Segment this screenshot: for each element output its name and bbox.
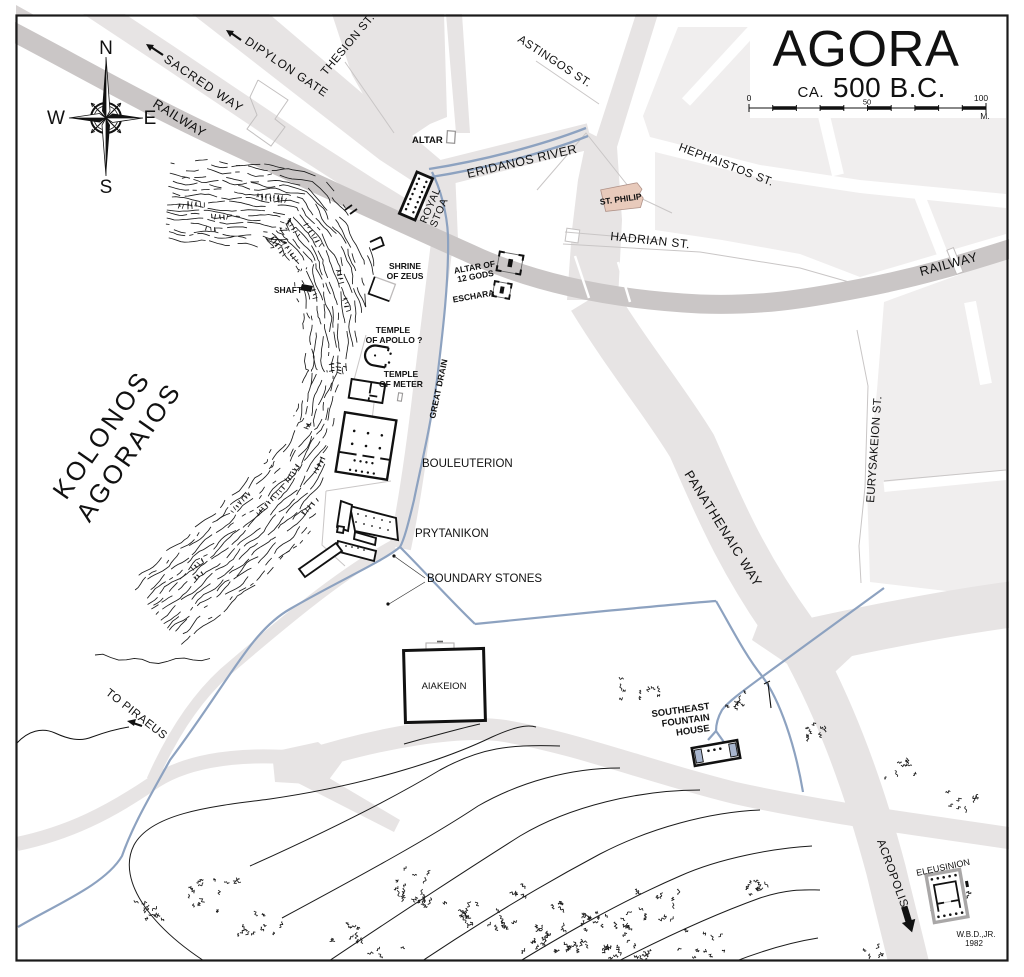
svg-text:OF APOLLO ?: OF APOLLO ? [366, 335, 423, 345]
svg-text:50: 50 [863, 98, 871, 107]
svg-text:AGORA: AGORA [773, 20, 960, 77]
svg-text:OF METER: OF METER [379, 379, 423, 389]
svg-text:0: 0 [747, 93, 752, 103]
svg-text:SHAFT: SHAFT [274, 285, 303, 295]
svg-text:W.B.D.,JR.: W.B.D.,JR. [956, 930, 995, 939]
svg-text:BOUNDARY STONES: BOUNDARY STONES [427, 573, 542, 585]
svg-text:100: 100 [974, 93, 988, 103]
svg-text:CA.: CA. [797, 84, 824, 101]
svg-text:ALTAR: ALTAR [412, 135, 443, 146]
svg-text:E: E [144, 108, 157, 129]
svg-text:SHRINE: SHRINE [389, 261, 421, 271]
svg-text:500 B.C.: 500 B.C. [833, 72, 946, 103]
svg-text:1982: 1982 [965, 939, 983, 948]
svg-text:OF ZEUS: OF ZEUS [387, 271, 424, 281]
svg-text:AIAKEION: AIAKEION [422, 681, 467, 692]
svg-text:W: W [47, 108, 65, 129]
svg-text:M.: M. [980, 111, 989, 121]
svg-text:BOULEUTERION: BOULEUTERION [422, 458, 513, 470]
svg-text:N: N [99, 38, 113, 59]
svg-text:PRYTANIKON: PRYTANIKON [415, 528, 489, 540]
svg-text:TEMPLE: TEMPLE [376, 325, 411, 335]
svg-text:S: S [100, 177, 113, 198]
svg-text:TEMPLE: TEMPLE [384, 369, 419, 379]
